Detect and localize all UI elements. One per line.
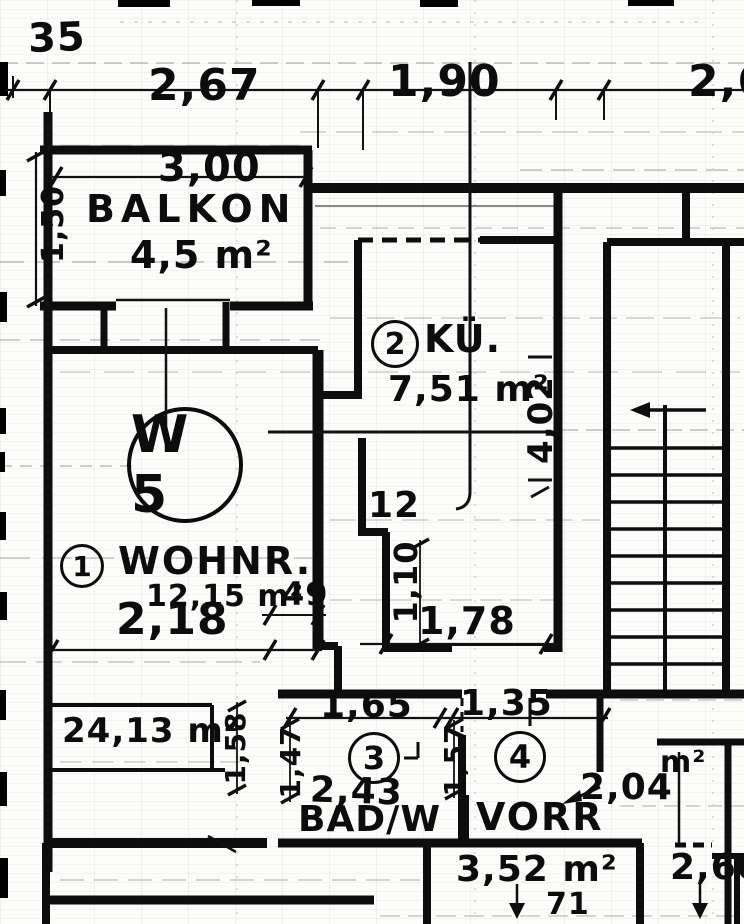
dim-bad-147: 1,47: [277, 725, 305, 798]
room-area-nebenraum: 3,52 m²: [456, 852, 618, 888]
dim-bottom-260: 2,60: [670, 850, 744, 886]
dim-top-260: 2,60: [688, 60, 744, 104]
dim-balkon-150: 1,50: [39, 185, 69, 263]
room-index-vorraum: 4: [494, 731, 546, 783]
dim-top-267: 2,67: [148, 64, 261, 108]
room-index-wohnzimmer-number: 1: [72, 550, 91, 583]
room-index-kueche-number: 2: [385, 327, 406, 362]
area-total-wohnung: 24,13 m²: [62, 714, 240, 748]
dim-bad-165: 1,65: [320, 688, 413, 724]
room-index-vorraum-number: 4: [509, 738, 531, 776]
dim-vorraum-157: 1,57: [441, 723, 469, 796]
room-index-wohnzimmer: 1: [60, 544, 104, 588]
stair-direction-arrow: [630, 402, 650, 418]
dim-kueche-178: 1,78: [418, 602, 516, 640]
room-label-balkon: BALKON: [86, 190, 296, 228]
area-vorraum-unit: m²: [660, 748, 706, 778]
dim-kueche-402: 4,02: [524, 376, 558, 464]
unit-number-circle: W 5: [127, 407, 243, 523]
dim-bottom-71: 71: [546, 890, 590, 920]
room-area-balkon: 4,5 m²: [130, 236, 273, 274]
dim-top-190: 1,90: [388, 60, 501, 104]
dim-wall-12: 12: [368, 488, 420, 524]
dim-niche-49: 49: [282, 578, 329, 610]
room-label-kueche: KÜ.: [424, 320, 501, 358]
dim-wall-35: 35: [27, 17, 86, 59]
dim-vorraum-135: 1,35: [460, 686, 553, 722]
dim-balkon-300: 3,00: [158, 148, 261, 188]
dim-wohnzimmer-218: 2,18: [116, 598, 229, 642]
area-vorraum-value: 2,04: [580, 770, 673, 806]
floor-plan-sheet: 35 2,67 1,90 2,60 3,00 BALKON 4,5 m² 1,5…: [0, 0, 744, 924]
dim-158: 1,58: [222, 711, 250, 784]
room-index-kueche: 2: [371, 320, 419, 368]
unit-number: W 5: [131, 405, 239, 525]
staircase: [610, 405, 724, 694]
scan-edge-artifacts: [0, 0, 674, 898]
room-label-bad: BAD/W: [298, 802, 441, 838]
